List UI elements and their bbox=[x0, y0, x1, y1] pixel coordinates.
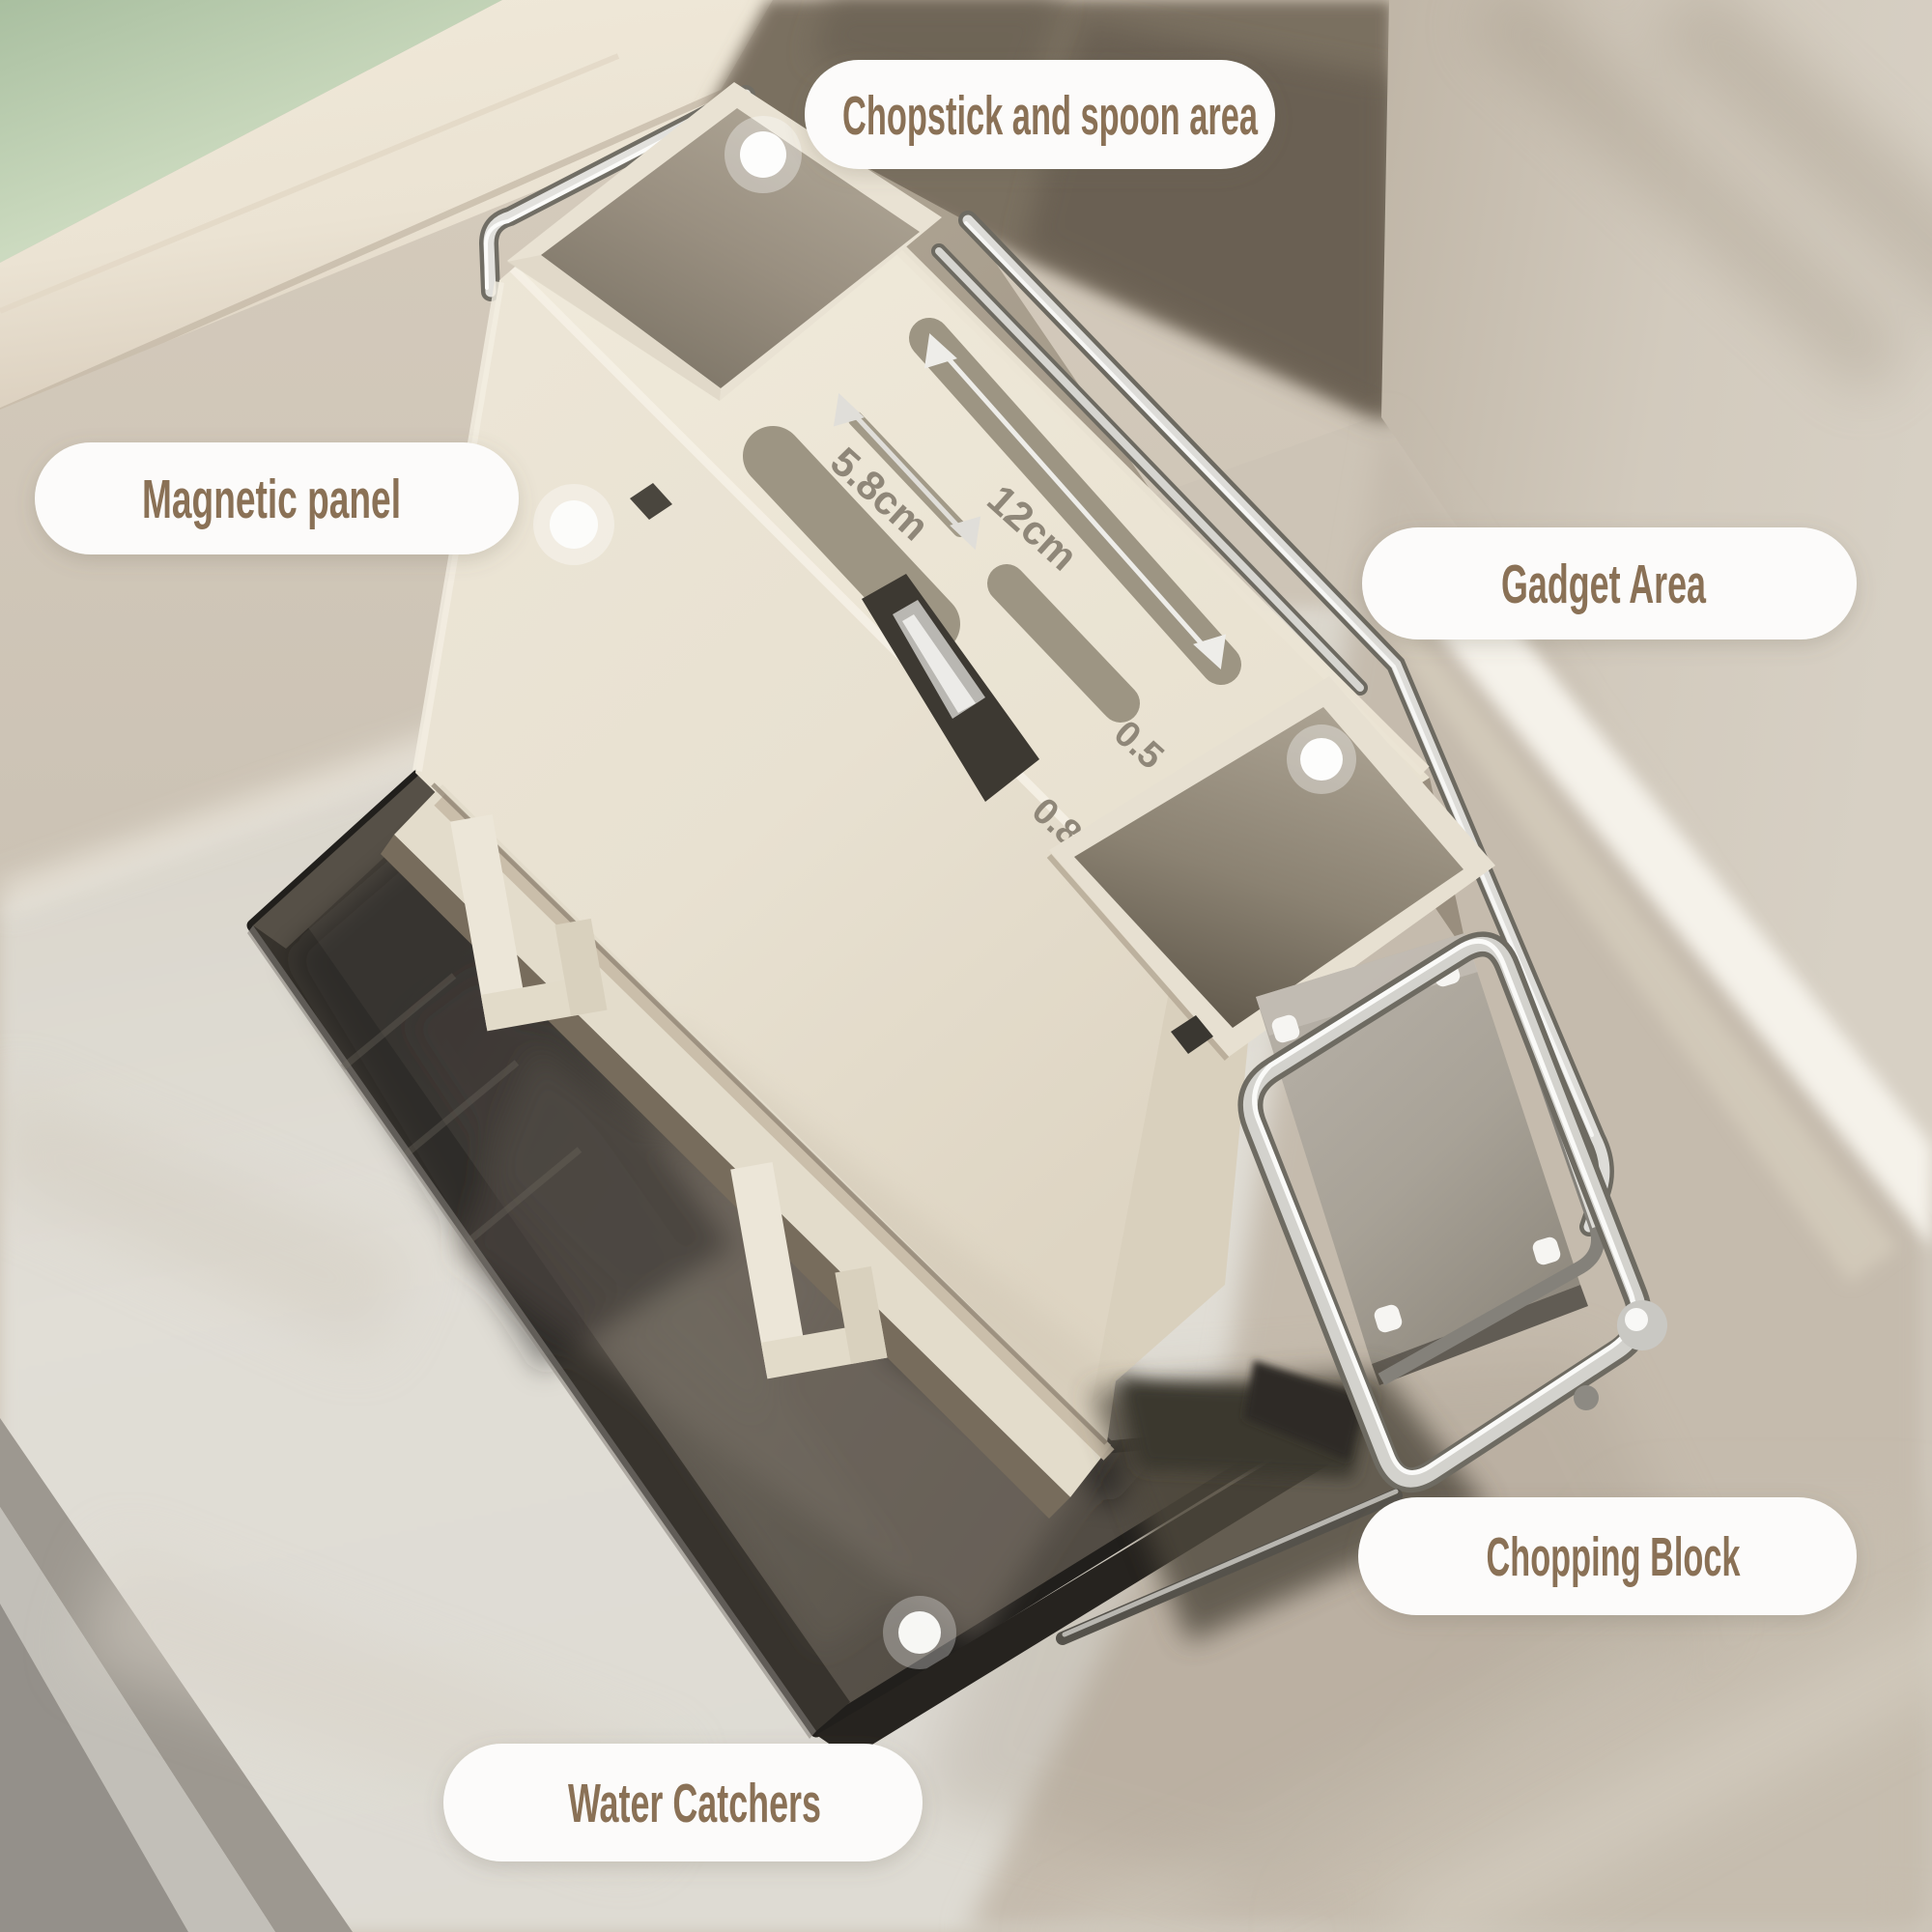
svg-text:Magnetic panel: Magnetic panel bbox=[142, 469, 401, 530]
svg-text:Chopstick and spoon area: Chopstick and spoon area bbox=[842, 85, 1259, 147]
svg-text:Gadget Area: Gadget Area bbox=[1501, 554, 1707, 615]
svg-text:Chopping Block: Chopping Block bbox=[1487, 1526, 1741, 1588]
svg-text:Water Catchers: Water Catchers bbox=[568, 1773, 821, 1834]
